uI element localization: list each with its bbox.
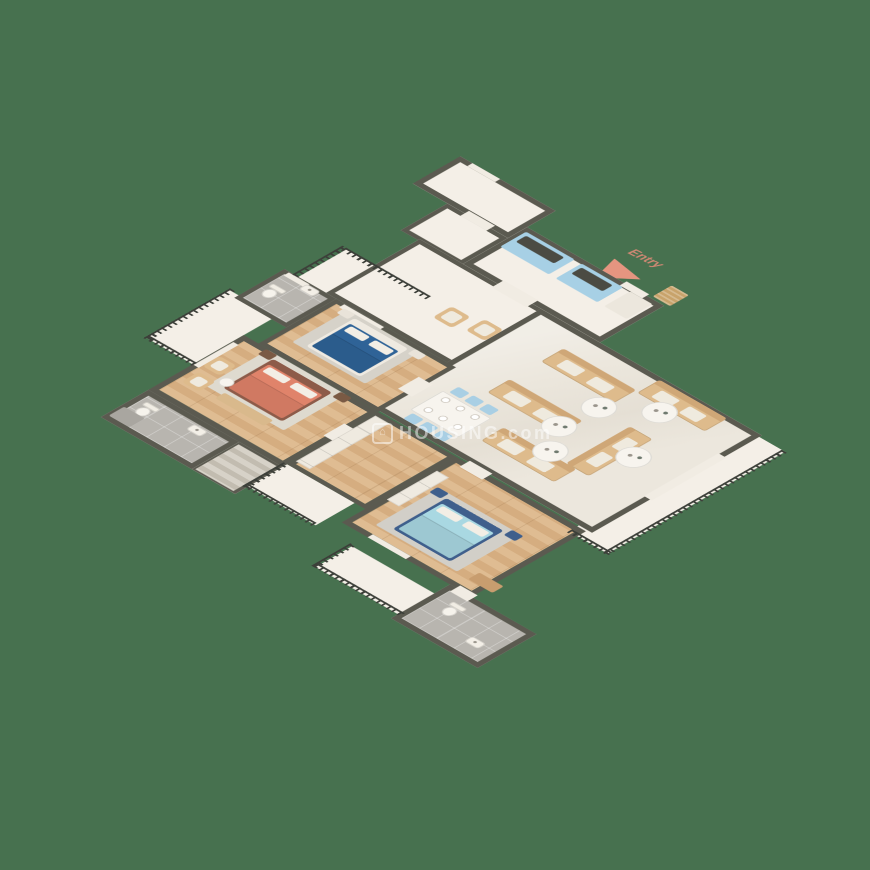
floor-plan: Entry xyxy=(19,156,870,688)
table-decor xyxy=(562,425,569,429)
counter-top xyxy=(516,236,565,264)
floor-plan-scene: Entry ⌂ HOUSING.com xyxy=(0,0,870,870)
table-decor xyxy=(602,406,609,410)
table-decor xyxy=(592,404,599,408)
table-decor xyxy=(544,447,551,451)
table-decor xyxy=(553,450,560,454)
chair-cushion xyxy=(188,376,209,388)
table-decor xyxy=(636,456,643,460)
chair-cushion xyxy=(472,323,496,337)
sink-drain xyxy=(194,428,199,431)
watermark: ⌂ HOUSING.com xyxy=(372,423,553,444)
sink-drain xyxy=(472,641,477,644)
watermark-text: HOUSING.com xyxy=(399,423,553,444)
table-decor xyxy=(662,411,669,415)
table-decor xyxy=(552,422,559,426)
chair-cushion xyxy=(209,360,230,372)
chair-cushion xyxy=(440,310,464,324)
table-decor xyxy=(627,453,634,457)
table-decor xyxy=(653,409,660,413)
watermark-logo-icon: ⌂ xyxy=(372,423,393,444)
sink-drain xyxy=(307,288,312,291)
